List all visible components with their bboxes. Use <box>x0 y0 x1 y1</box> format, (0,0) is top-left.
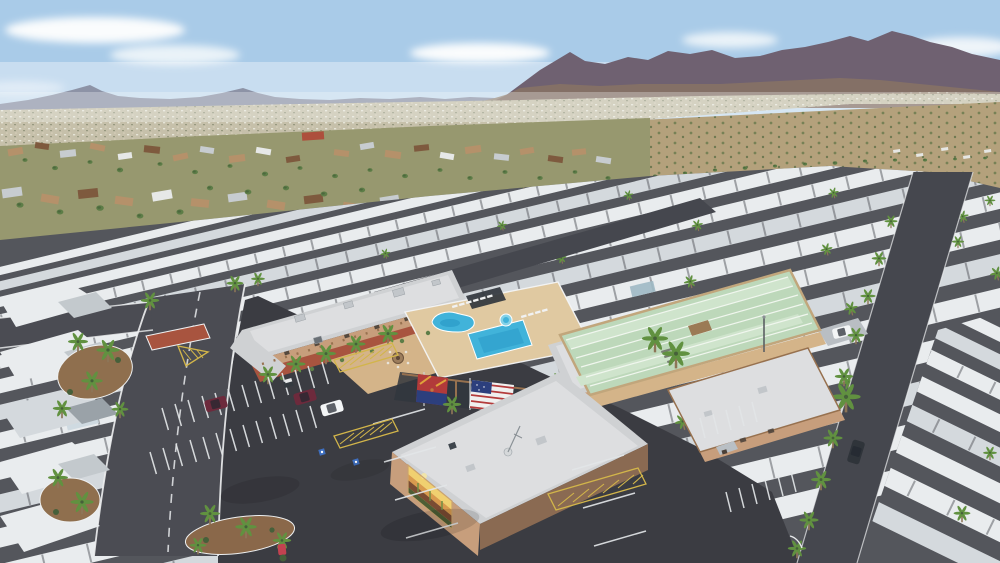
cloud <box>5 17 185 43</box>
cloud <box>110 45 240 65</box>
light-pole-head <box>762 315 765 318</box>
cloud <box>410 43 550 63</box>
aerial-photo: Midday aerial view: blue sky with thin c… <box>0 0 1000 563</box>
spa-center <box>503 317 509 323</box>
copper-star <box>430 388 433 391</box>
fire-pit-bowl <box>396 356 400 360</box>
cloud <box>682 32 778 48</box>
aerial-photo-svg: Aerial drone photo of a desert mobile ho… <box>0 0 1000 563</box>
kidney-pool-depth <box>440 319 460 327</box>
